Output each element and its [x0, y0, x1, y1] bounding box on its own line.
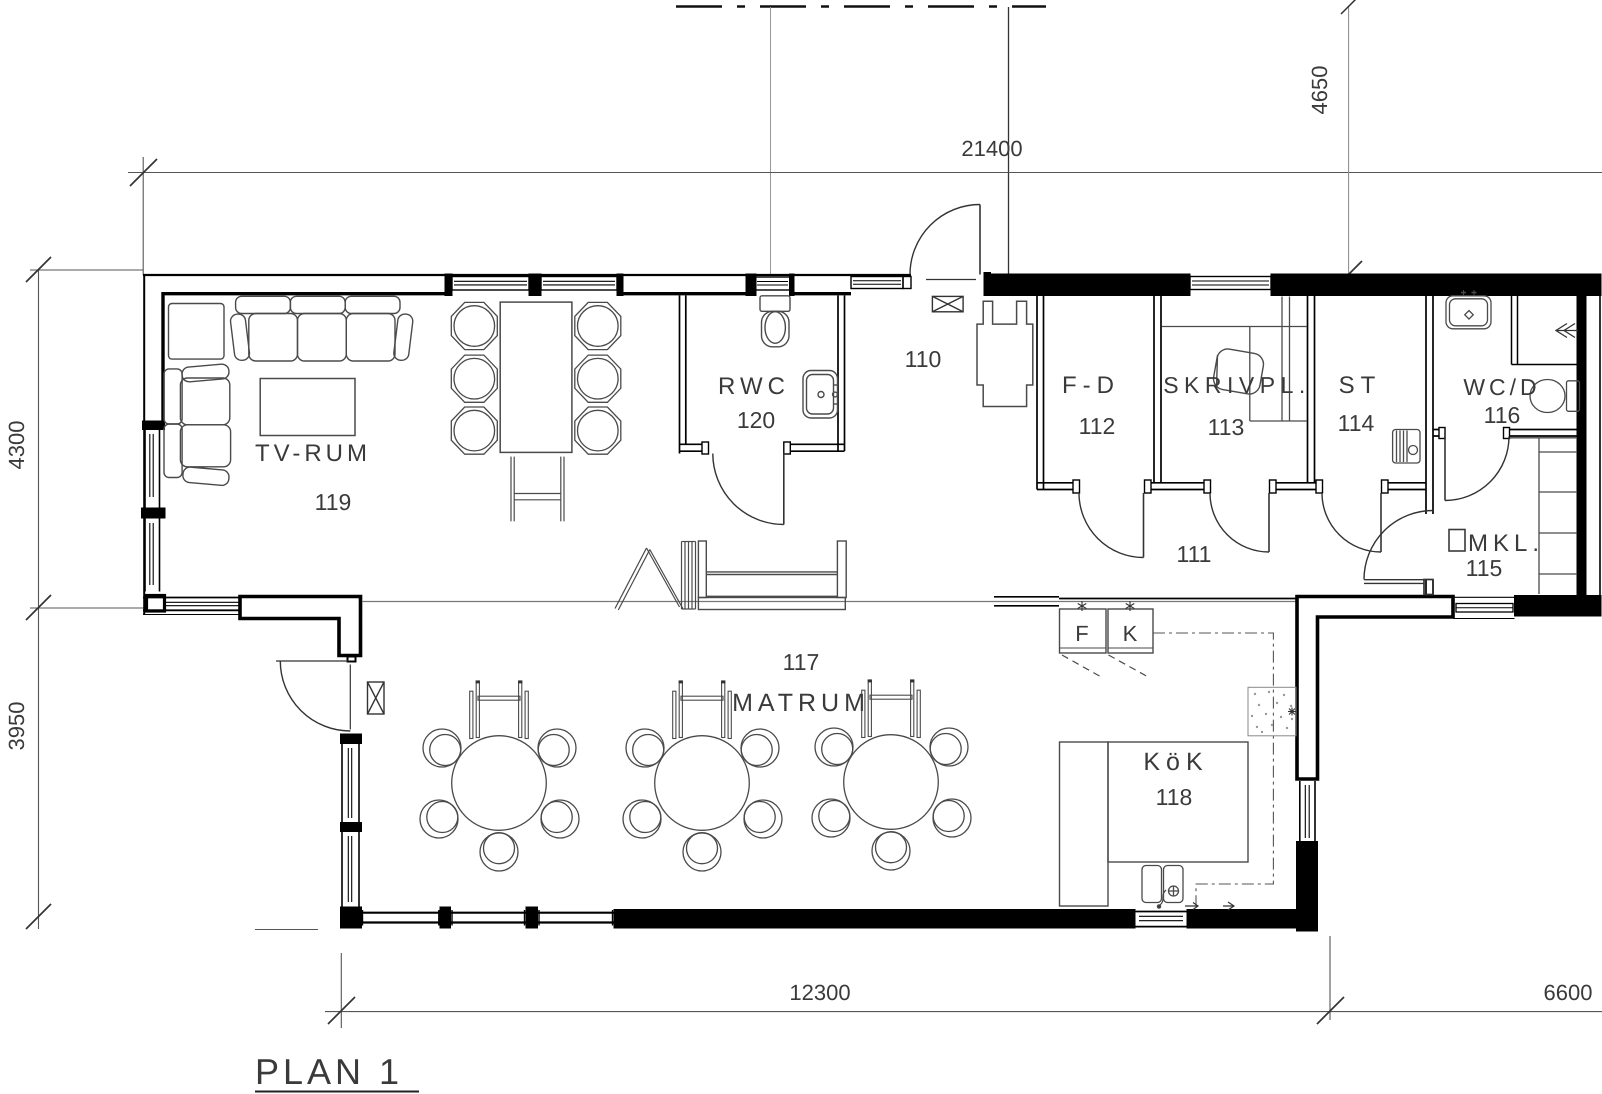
svg-text:MKL.: MKL.: [1468, 530, 1544, 557]
svg-text:PLAN 1: PLAN 1: [255, 1051, 403, 1092]
svg-text:TV-RUM: TV-RUM: [255, 440, 371, 467]
svg-text:21400: 21400: [961, 136, 1022, 161]
svg-text:116: 116: [1484, 402, 1521, 428]
svg-text:112: 112: [1079, 413, 1116, 439]
svg-text:4300: 4300: [4, 421, 29, 470]
svg-text:110: 110: [905, 346, 942, 372]
svg-text:SKRIVPL.: SKRIVPL.: [1163, 372, 1311, 398]
svg-text:6600: 6600: [1544, 980, 1593, 1005]
svg-text:120: 120: [737, 407, 775, 433]
svg-text:WC/D: WC/D: [1463, 374, 1540, 400]
svg-text:KöK: KöK: [1143, 748, 1208, 776]
svg-text:119: 119: [315, 489, 352, 515]
svg-text:3950: 3950: [4, 702, 29, 751]
svg-text:ST: ST: [1339, 372, 1382, 399]
svg-text:F-D: F-D: [1062, 372, 1120, 399]
svg-text:K: K: [1123, 621, 1138, 646]
svg-text:RWC: RWC: [718, 373, 790, 400]
svg-text:4650: 4650: [1307, 66, 1332, 115]
svg-text:117: 117: [783, 649, 820, 675]
svg-text:114: 114: [1338, 410, 1375, 436]
svg-text:113: 113: [1208, 414, 1245, 440]
svg-text:118: 118: [1156, 784, 1193, 810]
svg-text:F: F: [1075, 621, 1088, 646]
svg-text:MATRUM: MATRUM: [732, 689, 870, 717]
svg-text:111: 111: [1177, 541, 1212, 567]
svg-text:115: 115: [1466, 555, 1503, 581]
svg-text:12300: 12300: [789, 980, 850, 1005]
